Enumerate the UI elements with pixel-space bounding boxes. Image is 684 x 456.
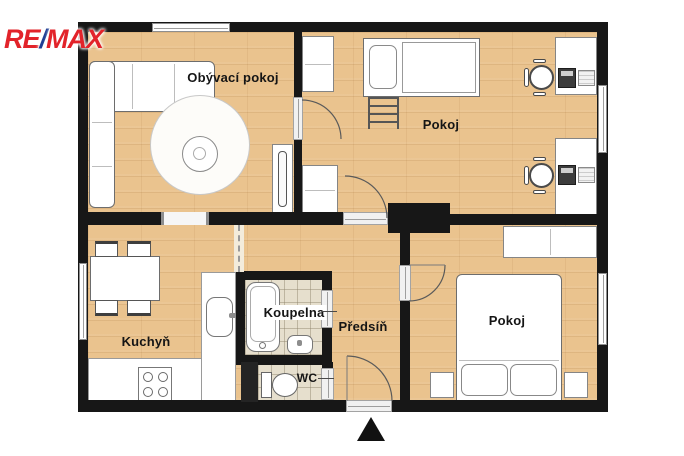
wall-hall-bedroom: [400, 230, 410, 265]
office-chair-armrest: [533, 157, 546, 161]
door-wc: [321, 368, 334, 400]
door-frame-line: [405, 267, 406, 299]
office-chair-back: [524, 68, 529, 87]
door-frame-line: [345, 219, 386, 220]
wall-outer-bottom: [392, 400, 608, 412]
sofa-cushion-seam: [132, 64, 133, 109]
toilet-bowl: [272, 373, 298, 397]
window-glass: [603, 275, 604, 343]
wardrobe: [302, 36, 334, 92]
stove: [138, 367, 172, 401]
office-chair-armrest: [533, 92, 546, 96]
wall-kidsroom-bedroom: [450, 214, 597, 225]
window: [598, 85, 607, 153]
chair: [127, 241, 151, 257]
pillow: [369, 45, 397, 89]
wall-pillar: [388, 203, 450, 233]
office-chair: [529, 65, 554, 90]
nightstand: [564, 372, 588, 398]
stove-burner: [143, 372, 153, 382]
pillow: [510, 364, 557, 396]
nightstand: [430, 372, 454, 398]
kids-room-label: Pokoj: [423, 117, 459, 132]
wardrobe-door-seam: [550, 229, 551, 255]
wall-living-kidsroom: [294, 140, 302, 215]
office-chair: [529, 163, 554, 188]
sofa-cushion-seam: [92, 166, 112, 167]
remax-logo: RE/MAX: [4, 24, 103, 55]
corner-sofa-left: [89, 61, 115, 208]
bathtub-faucet: [259, 342, 266, 349]
door-frame-line: [298, 99, 299, 138]
wc-label: WC: [297, 371, 317, 385]
hall-label: Předsíň: [338, 319, 387, 334]
logo-max: MAX: [46, 24, 103, 54]
wall-outer-right: [597, 22, 608, 412]
office-chair-armrest: [533, 190, 546, 194]
computer-monitor: [558, 165, 576, 185]
monitor-screen: [561, 168, 573, 173]
toilet-tank: [261, 372, 272, 398]
chair: [127, 300, 151, 316]
tv: [278, 151, 287, 207]
stove-burner: [158, 387, 168, 397]
office-chair-back: [524, 166, 529, 185]
chair: [95, 241, 118, 257]
kitchen-label: Kuchyň: [122, 334, 171, 349]
duvet-fold: [459, 360, 559, 361]
floor-plan-page: Obývací pokoj Pokoj Kuchyň Koupelna Před…: [0, 0, 684, 456]
living-room-label: Obývací pokoj: [187, 70, 278, 85]
wardrobe-door-seam: [305, 64, 331, 65]
window: [79, 263, 87, 340]
door-living-kidsroom: [293, 97, 303, 140]
pillow: [461, 364, 508, 396]
coffee-table: [182, 136, 218, 172]
window: [152, 23, 230, 32]
washbasin: [287, 335, 313, 354]
stove-burner: [158, 372, 168, 382]
door-bedroom: [399, 265, 411, 301]
computer-keyboard: [578, 70, 595, 86]
washbasin-drain: [297, 340, 302, 346]
wall-hall-bedroom: [400, 300, 410, 402]
door-frame-line: [328, 370, 329, 398]
wardrobe: [503, 226, 597, 258]
window-glass: [154, 28, 228, 29]
window-glass: [83, 265, 84, 338]
wall-living-kidsroom: [294, 32, 302, 97]
bedroom-label: Pokoj: [489, 313, 525, 328]
stove-burner: [143, 387, 153, 397]
entrance-arrow: [357, 417, 385, 441]
window-glass: [603, 87, 604, 151]
wc-label-leader-line: [318, 378, 334, 379]
chair: [95, 300, 118, 316]
wall-bathroom-top: [236, 271, 332, 280]
wardrobe: [302, 165, 338, 215]
window: [598, 273, 607, 345]
coffee-table-inner: [193, 147, 206, 160]
bathroom-label-leader-line: [322, 311, 337, 312]
loft-bed-mattress: [402, 42, 476, 93]
door-frame-line: [348, 406, 390, 407]
opening-living-kitchen: [161, 212, 209, 225]
sofa-cushion-seam: [92, 122, 112, 123]
kitchen-counter: [201, 272, 236, 402]
wall-outer-bottom: [78, 400, 346, 412]
loft-bed: [363, 38, 480, 97]
wall-mid-horizontal: [209, 212, 343, 225]
monitor-screen: [561, 71, 573, 76]
door-frame-line: [327, 292, 328, 326]
computer-keyboard: [578, 167, 595, 183]
wall-wc-shaft: [241, 362, 258, 402]
wall-outer-left: [78, 22, 88, 412]
dining-table: [90, 256, 160, 301]
entrance-door: [346, 400, 392, 412]
wardrobe-door-seam: [305, 190, 335, 191]
logo-re: RE: [4, 24, 40, 54]
wall-bathroom-left: [236, 271, 245, 365]
office-chair-armrest: [533, 59, 546, 63]
wall-bathroom-right: [322, 279, 332, 290]
wall-living-kitchen: [88, 212, 161, 225]
bathroom-label: Koupelna: [262, 305, 327, 320]
computer-monitor: [558, 68, 576, 88]
door-kidsroom-hall: [343, 212, 388, 225]
loft-bed-ladder: [368, 97, 399, 129]
opening-dashed-line: [238, 225, 240, 272]
opening-kitchen-hall: [234, 225, 244, 272]
